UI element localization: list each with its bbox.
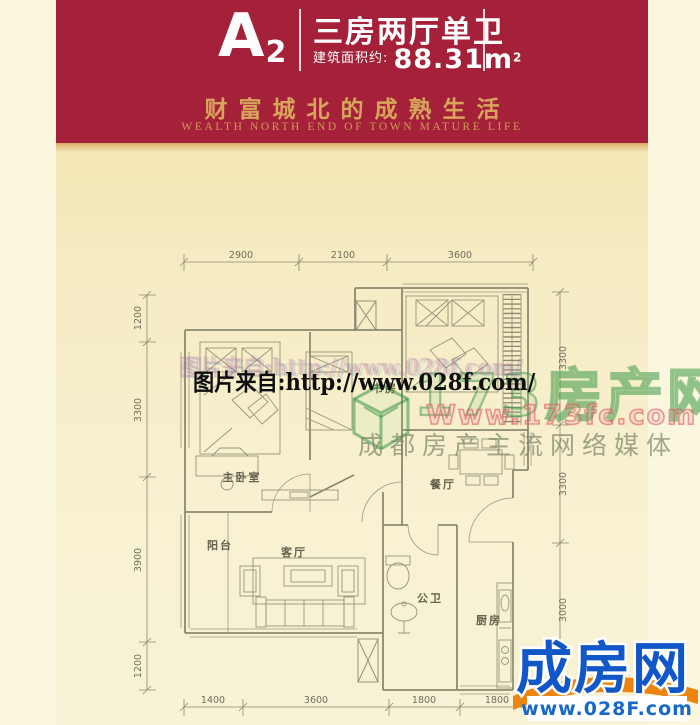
site-logo: 成房网 www.028F.com	[511, 630, 700, 725]
room-label-balcony: 阳台	[207, 538, 233, 552]
dim-top-3: 3600	[448, 250, 472, 261]
plan-doors	[272, 474, 513, 555]
site-logo-name: 成房网	[516, 637, 690, 702]
dim-right-2: 3300	[558, 472, 569, 496]
dim-left-4: 1200	[133, 654, 144, 678]
banner-gold-strip	[56, 143, 648, 153]
flyer-page: A2 三房两厅单卫 建筑面积约: 88.31m2 财富城北的成熟生活 WEALT…	[0, 0, 700, 725]
site-logo-url: www.028F.com	[521, 698, 693, 720]
slogan-english: WEALTH NORTH END OF TOWN MATURE LIFE	[56, 121, 648, 133]
dim-left-1: 1200	[133, 306, 144, 330]
room-label-bath: 公卫	[417, 592, 443, 605]
dim-bottom-1: 1400	[201, 695, 225, 706]
dim-right-1: 3300	[558, 346, 569, 370]
unit-code-number: 2	[265, 35, 286, 70]
area-value: 88.31m	[393, 44, 513, 75]
dim-left-2: 3300	[133, 398, 144, 422]
room-label-study: 书房	[372, 381, 398, 395]
dim-bottom-4: 1800	[485, 695, 509, 706]
dim-left-3: 3900	[133, 548, 144, 572]
furniture-study	[306, 352, 352, 430]
room-label-kitchen: 厨房	[476, 613, 502, 627]
furniture-bathroom	[386, 556, 417, 633]
area-label: 建筑面积约:	[313, 51, 388, 66]
area-unit-sup: 2	[513, 51, 521, 65]
banner-divider-left	[299, 9, 301, 71]
slogan-chinese: 财富城北的成熟生活	[56, 90, 648, 124]
furniture-dining	[449, 439, 514, 485]
furniture-master-bedroom	[196, 342, 280, 490]
room-label-dining: 餐厅	[429, 477, 456, 491]
dim-top-1: 2900	[229, 250, 253, 261]
title-banner: A2 三房两厅单卫 建筑面积约: 88.31m2 财富城北的成熟生活 WEALT…	[56, 0, 648, 143]
room-label-living: 客厅	[280, 545, 307, 559]
banner-divider-right	[483, 9, 485, 71]
unit-code: A2	[218, 0, 285, 72]
dim-bottom-2: 3600	[304, 695, 328, 706]
staircase-hatch	[503, 294, 521, 425]
shaft-boxes	[356, 301, 378, 682]
area-line: 建筑面积约: 88.31m2	[313, 44, 521, 75]
unit-code-letter: A	[218, 1, 264, 71]
room-label-master: 主卧室	[223, 470, 262, 484]
furniture-bedroom2	[406, 296, 498, 392]
dim-right-3: 3000	[558, 598, 569, 622]
dim-top-2: 2100	[331, 250, 355, 261]
dim-bottom-3: 1800	[412, 695, 436, 706]
